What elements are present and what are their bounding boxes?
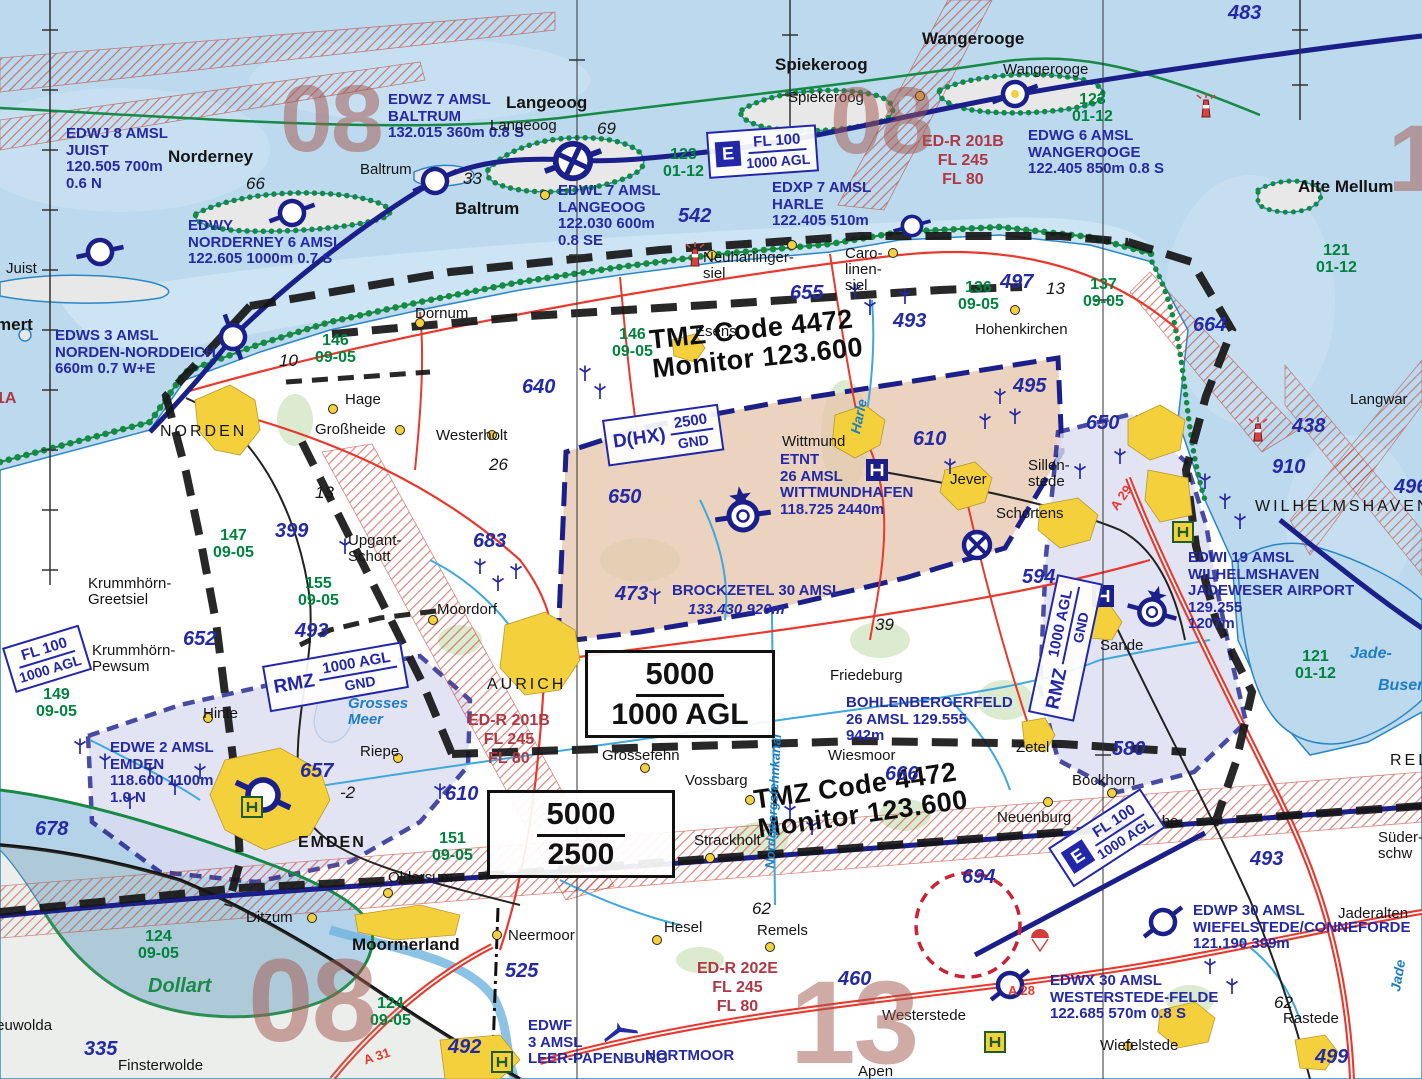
restricted-area-edr201b-north: ED-R 201B FL 245 FL 80 — [922, 133, 1004, 190]
spot-39: 39 — [875, 616, 894, 635]
airspace-box-dhx: D(HX)2500GND — [602, 404, 725, 467]
obstacle-496: 496 — [1394, 476, 1422, 498]
obstacle-594: 594 — [1022, 566, 1055, 588]
obstacle-650-west: 650 — [608, 486, 641, 508]
spot-minus2: -2 — [340, 784, 355, 803]
town-schortens: Schortens — [996, 506, 1064, 522]
airfield-info-edxp: EDXP 7 AMSL HARLE 122.405 510m — [772, 180, 871, 230]
restricted-area-edr201b-west: ED-R 201B FL 245 FL 80 — [468, 712, 550, 769]
water-dollart: Dollart — [148, 975, 211, 997]
town-grossefehn: Grossefehn — [602, 748, 680, 764]
obstacle-493-varel: 493 — [1250, 848, 1283, 870]
msa-121-south: 121 01-12 — [1295, 648, 1336, 683]
town-krummhoern-pewsum: Krummhörn- Pewsum — [92, 643, 175, 675]
obstacle-652: 652 — [183, 628, 216, 650]
grid-numeral-08-ne: 08 — [830, 80, 932, 164]
obstacle-655: 655 — [790, 282, 823, 304]
town-suederschweiburg-part: Süder- schw — [1378, 830, 1422, 862]
restricted-area-edr202e: ED-R 202E FL 245 FL 80 — [697, 960, 778, 1017]
msa-137: 137 09-05 — [1083, 276, 1124, 311]
tmz-label-north: TMZ Code 4472 Monitor 123.600 — [648, 304, 865, 384]
msa-146-esens: 146 09-05 — [612, 326, 653, 361]
airfield-info-brockzetel: BROCKZETEL 30 AMSL — [672, 583, 841, 600]
town-aurich: AURICH — [487, 676, 566, 694]
msa-123-langeoog: 123 01-12 — [663, 146, 704, 181]
town-hage: Hage — [345, 392, 381, 408]
airfield-info-bohlenbergerfeld: BOHLENBERGERFELD 26 AMSL 129.555 942m — [846, 695, 1013, 745]
town-memmert-part: mert — [0, 316, 33, 335]
obstacle-499: 499 — [1315, 1046, 1348, 1068]
obstacle-610-wittmund: 610 — [913, 428, 946, 450]
spot-66: 66 — [246, 175, 265, 194]
obstacle-542: 542 — [678, 205, 711, 227]
town-wangerooge-bold: Wangerooge — [922, 30, 1024, 49]
water-jade-river: Jade — [1388, 959, 1408, 993]
obstacle-438: 438 — [1292, 415, 1325, 437]
town-grossheide: Großheide — [315, 422, 386, 438]
town-esens: Esens — [695, 324, 737, 340]
town-norden: NORDEN — [160, 423, 247, 441]
town-norderney: Norderney — [168, 148, 253, 167]
obstacle-497: 497 — [1000, 271, 1033, 293]
town-wiefelstede: Wiefelstede — [1100, 1038, 1178, 1054]
obstacle-694: 694 — [962, 866, 995, 888]
town-sande: Sande — [1100, 638, 1143, 654]
airfield-info-edwl: EDWL 7 AMSL LANGEOOG 122.030 600m 0.8 SE — [558, 183, 661, 249]
town-krummhoern-greetsiel: Krummhörn- Greetsiel — [88, 576, 171, 608]
obstacle-483: 483 — [1228, 2, 1261, 24]
grid-numeral-1-east-part: 1 — [1388, 118, 1422, 202]
grid-numeral-13-se: 13 — [790, 972, 917, 1076]
town-varel-part: REL — [1390, 752, 1422, 770]
town-neermoor: Neermoor — [508, 928, 575, 944]
airspace-box-fl100-west: FL 1001000 AGL — [2, 625, 92, 693]
town-jever: Jever — [950, 472, 987, 488]
obstacle-580: 580 — [1112, 738, 1145, 760]
airfield-info-edwj: EDWJ 8 AMSL JUIST 120.505 700m 0.6 N — [66, 126, 168, 192]
town-juist: Juist — [6, 261, 37, 277]
obstacle-525: 525 — [505, 960, 538, 982]
water-jade: Jade- — [1350, 646, 1392, 663]
obstacle-657: 657 — [300, 760, 333, 782]
spot-62-remels: 62 — [752, 900, 771, 919]
airfield-info-brockzetel-freq: 133.430 920m — [688, 602, 785, 619]
town-vossbarg: Vossbarg — [685, 773, 748, 789]
town-langeoog-bold: Langeoog — [506, 94, 587, 113]
airfield-info-edws: EDWS 3 AMSL NORDEN-NORDDEICH 660m 0.7 W+… — [55, 328, 216, 378]
spot-10: 10 — [279, 352, 298, 371]
town-rastede: Rastede — [1283, 1011, 1339, 1027]
limit-box-5000-2500: 50002500 — [487, 790, 675, 878]
town-remels: Remels — [757, 923, 808, 939]
airfield-info-edwe: EDWE 2 AMSL EMDEN 118.600 1100m 1.0 N — [110, 740, 214, 806]
road-a28: A 28 — [1008, 984, 1035, 998]
obstacle-335: 335 — [84, 1038, 117, 1060]
town-wangerooge: Wangerooge — [1003, 62, 1088, 78]
rmz-box-wilhelmshaven: RMZ1000 AGLGND — [1028, 574, 1103, 722]
spot-33: 33 — [463, 170, 482, 189]
airspace-box-e-fl100-south: EFL 1001000 AGL — [1048, 788, 1166, 887]
airfield-info-edwx: EDWX 30 AMSL WESTERSTEDE-FELDE 122.685 5… — [1050, 973, 1218, 1023]
obstacle-493-west: 493 — [295, 620, 328, 642]
town-ditzum: Ditzum — [246, 910, 293, 926]
limit-box-5000-1000agl: 50001000 AGL — [585, 650, 775, 738]
road-a29: A 29 — [1108, 483, 1135, 513]
town-bockhorn: Bockhorn — [1072, 773, 1135, 789]
spot-13-hohenkirchen: 13 — [1046, 280, 1065, 299]
town-baltrum-bold: Baltrum — [455, 200, 519, 219]
msa-147: 147 09-05 — [213, 527, 254, 562]
town-strackholt: Strackholt — [694, 833, 761, 849]
town-neuenburg: Neuenburg — [997, 810, 1071, 826]
spot-13-norden: 13 — [315, 484, 334, 503]
town-wilhelmshaven: WILHELMSHAVEN — [1255, 498, 1422, 516]
obstacle-495: 495 — [1013, 375, 1046, 397]
water-busen: Busen — [1378, 678, 1422, 695]
town-wiesmoor: Wiesmoor — [828, 748, 896, 764]
obstacle-650-east: 650 — [1086, 412, 1119, 434]
grid-numeral-08-nw: 08 — [280, 78, 382, 162]
grid-numeral-08-sw: 08 — [248, 950, 375, 1054]
obstacle-492: 492 — [448, 1036, 481, 1058]
msa-146-dornum: 146 09-05 — [315, 332, 356, 367]
town-neuharlingersiel: Neuharlinger- siel — [703, 250, 794, 282]
msa-123-wangerooge: 123 01-12 — [1072, 91, 1113, 126]
obstacle-640: 640 — [522, 376, 555, 398]
tmz-label-south: TMZ Code 4472 Monitor 123.600 — [752, 757, 970, 844]
spot-26: 26 — [489, 456, 508, 475]
town-zetel: Zetel — [1016, 740, 1049, 756]
airfield-info-edwg: EDWG 6 AMSL WANGEROOGE 122.405 850m 0.8 … — [1028, 128, 1164, 178]
msa-121-north: 121 01-12 — [1316, 242, 1357, 277]
spot-69: 69 — [597, 120, 616, 139]
label-layer: EDWJ 8 AMSL JUIST 120.505 700m 0.6 NEDWZ… — [0, 0, 1422, 1079]
obstacle-678: 678 — [35, 818, 68, 840]
town-oldersum: Oldersum — [388, 870, 453, 886]
town-langwarden-part: Langwar — [1350, 392, 1408, 408]
obstacle-683: 683 — [473, 530, 506, 552]
town-hesel: Hesel — [664, 920, 702, 936]
town-moordorf: Moordorf — [437, 602, 497, 618]
water-grosses-meer: Grosses Meer — [348, 696, 408, 728]
airfield-info-nortmoor: NORTMOOR — [645, 1048, 734, 1065]
town-dornum: Dornum — [415, 306, 468, 322]
town-jaderaltendeich-part: Jaderalten — [1338, 906, 1408, 922]
town-finsterwolde: Finsterwolde — [118, 1058, 203, 1074]
obstacle-473: 473 — [615, 583, 648, 605]
obstacle-664: 664 — [1193, 314, 1226, 336]
obstacle-493-carolinensiel: 493 — [893, 310, 926, 332]
airfield-info-edwi: EDWI 19 AMSL WILHELMSHAVEN JADEWESER AIR… — [1188, 550, 1354, 633]
town-hinte: Hinte — [203, 706, 238, 722]
obstacle-399: 399 — [275, 520, 308, 542]
obstacle-610-aurich: 610 — [445, 783, 478, 805]
town-riepe: Riepe — [360, 744, 399, 760]
town-westerholt: Westerholt — [436, 428, 507, 444]
msa-124-east: 124 09-05 — [370, 995, 411, 1030]
town-wittmund: Wittmund — [782, 434, 845, 450]
msa-155: 155 09-05 — [298, 575, 339, 610]
town-friedeburg: Friedeburg — [830, 668, 903, 684]
msa-124-west: 124 09-05 — [138, 928, 179, 963]
msa-136: 136 09-05 — [958, 279, 999, 314]
vfr-chart: EDWJ 8 AMSL JUIST 120.505 700m 0.6 NEDWZ… — [0, 0, 1422, 1079]
town-alte-mellum: Alte Mellum — [1298, 178, 1393, 197]
water-harle: Harle — [848, 398, 870, 435]
obstacle-910: 910 — [1272, 456, 1305, 478]
town-upgant-schott: Upgant- Schott — [348, 533, 401, 565]
msa-151: 151 09-05 — [432, 830, 473, 865]
airfield-info-etnt: ETNT 26 AMSL WITTMUNDHAFEN 118.725 2440m — [780, 452, 913, 518]
town-sillenstede: Sillen- stede — [1028, 458, 1070, 490]
town-emden: EMDEN — [298, 834, 366, 852]
airspace-box-e-fl100-north: EFL 1001000 AGL — [706, 124, 819, 179]
town-carolinensiel: Caro- linen- siel — [845, 246, 883, 295]
msa-149: 149 09-05 — [36, 686, 77, 721]
town-hohenkirchen: Hohenkirchen — [975, 322, 1068, 338]
town-nieuwolda: Nieuwolda — [0, 1018, 52, 1034]
label-1a-part: 1A — [0, 390, 16, 409]
obstacle-666: 666 — [885, 763, 918, 785]
town-langeoog: Langeoog — [490, 118, 557, 134]
airfield-info-edwy: EDWY NORDERNEY 6 AMSL 122.605 1000m 0.7 … — [188, 218, 342, 268]
